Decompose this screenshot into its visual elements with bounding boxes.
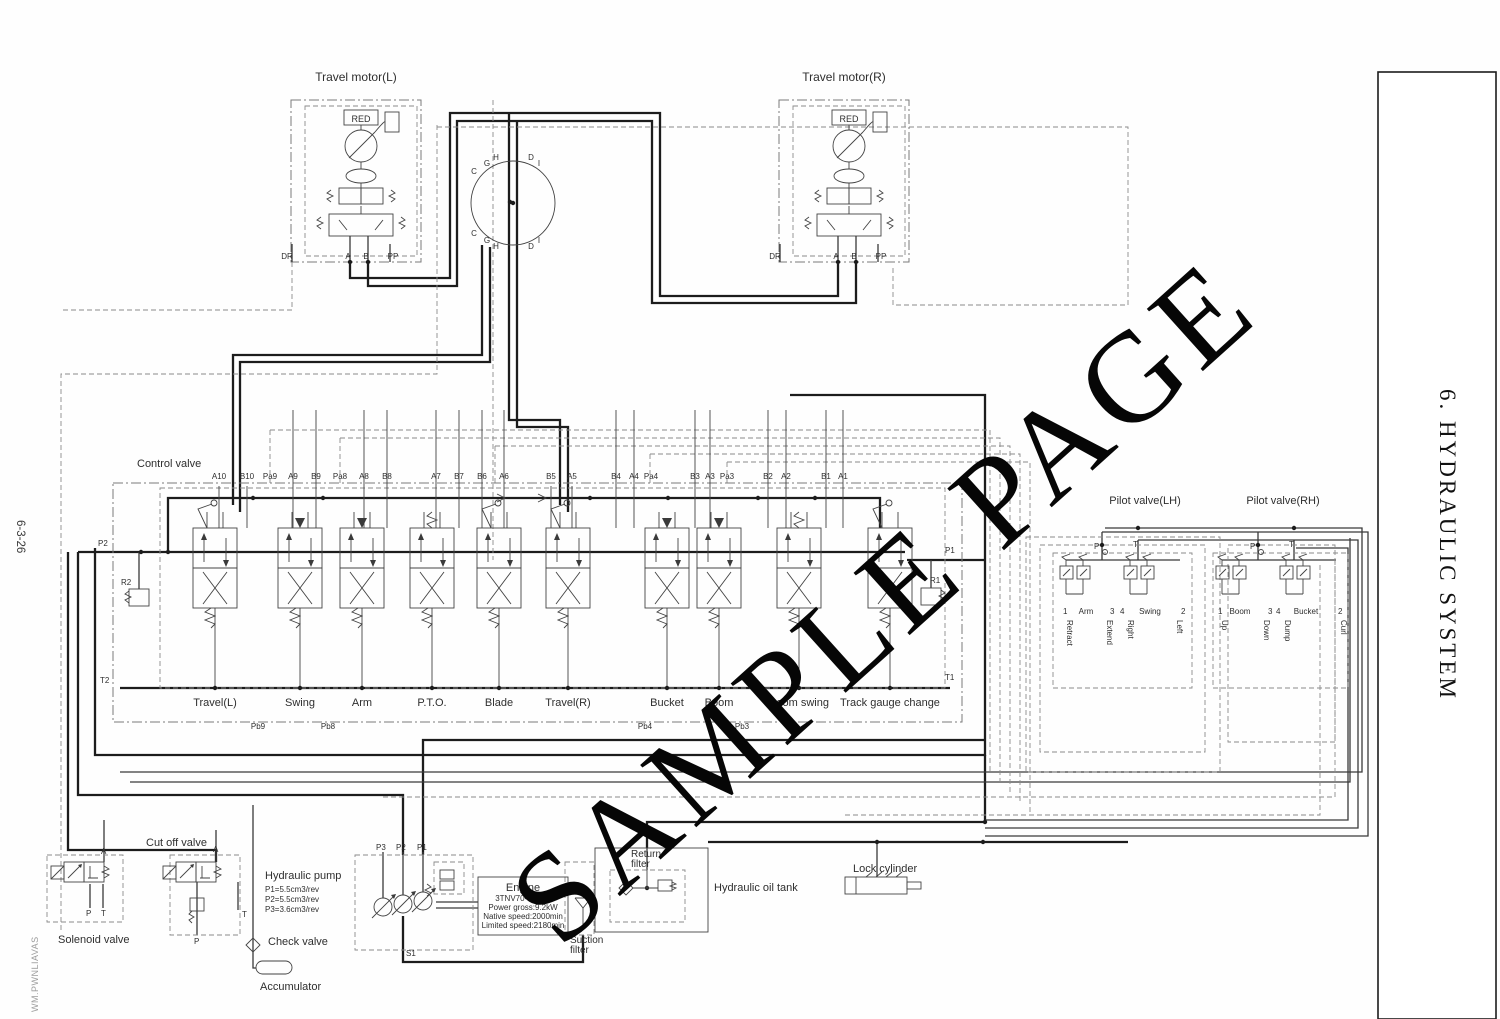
control-valve-port-label: A1: [838, 472, 848, 481]
pilot-direction-label: Dump: [1283, 620, 1292, 642]
pipe-bend: [375, 122, 385, 132]
valve-section-label: Travel(R): [545, 697, 590, 709]
valve-section-label: Blade: [485, 697, 513, 709]
junction-dot: [1100, 543, 1104, 547]
junction-dot: [983, 820, 987, 824]
coil-diagonal: [163, 866, 176, 879]
hydraulic-line: [985, 548, 1348, 820]
pilot-link: [1130, 560, 1147, 594]
valve-envelope: [410, 528, 454, 568]
motor-port-stub: [292, 236, 390, 262]
dashed-boundary-box: [1040, 545, 1205, 752]
pilot-arrow: [357, 518, 367, 528]
control-valve-port-label: Pa8: [333, 472, 348, 481]
service-line: [826, 410, 843, 528]
accumulator-label: Accumulator: [260, 981, 321, 993]
arrowhead: [440, 560, 446, 567]
cutoff-port-t: T: [242, 910, 247, 919]
hydraulic-line: [253, 805, 256, 968]
pipe-fitting: [385, 112, 399, 132]
crossed-flow: [487, 572, 511, 604]
arrowhead: [785, 533, 791, 540]
swivel-port-letter: H: [493, 153, 499, 162]
valve-envelope: [777, 528, 821, 568]
pump-port-s1: S1: [406, 949, 416, 958]
control-valve-port-label: A3: [705, 472, 715, 481]
pump-regulator: [440, 881, 454, 890]
pilot-line: [63, 262, 292, 310]
motor-port-label: B: [363, 252, 368, 261]
arrowhead: [675, 560, 681, 567]
flow-arrow: [180, 866, 192, 878]
junction-dot: [666, 496, 670, 500]
arrowhead: [308, 560, 314, 567]
junction-dot: [665, 686, 669, 690]
spring-symbol: [794, 512, 804, 528]
junction-dot: [1292, 526, 1296, 530]
pilot-link: [1066, 560, 1083, 594]
cut-off-valve-label: Cut off valve: [146, 837, 207, 849]
shuttle-block: [329, 214, 393, 236]
valve-port-stub: [560, 512, 576, 528]
hydraulic-line: [436, 902, 478, 908]
accumulator-capsule: [256, 961, 292, 974]
arrowhead: [653, 533, 659, 540]
crossed-flow: [350, 572, 374, 604]
main-hydraulic-line: [368, 121, 856, 303]
spring-symbol: [317, 217, 405, 229]
swivel-port-letter: D: [528, 242, 534, 251]
manual-lever: [551, 504, 565, 528]
port-t1: T1: [945, 673, 955, 682]
junction-dot: [875, 840, 879, 844]
spring-symbol: [422, 608, 432, 628]
valve-envelope: [477, 528, 521, 568]
flow-arrow: [68, 866, 80, 878]
pilot-link: [1222, 560, 1239, 594]
pilot-lh-p: P: [1094, 542, 1099, 551]
swivel-port-letter: H: [493, 242, 499, 251]
pilot-unit-name: Arm: [1079, 607, 1094, 616]
pilot-direction-label: Retract: [1065, 620, 1074, 647]
pilot-port-number: 4: [1276, 607, 1281, 616]
pilot-direction-label: Extend: [1105, 620, 1114, 645]
dashed-boundary-box: [434, 862, 464, 894]
swivel-port-letter: C: [471, 167, 477, 176]
red-label-right: RED: [839, 114, 859, 124]
spring-symbol: [214, 866, 221, 878]
pump-regulator: [440, 870, 454, 879]
crossed-flow: [707, 572, 731, 604]
tank-label: Hydraulic oil tank: [714, 882, 798, 894]
hydraulic-schematic: CGHDICGHDIDRABPPDRABPPTravel(L)SwingArmP…: [0, 0, 1500, 1019]
relief-r2-label: R2: [121, 578, 132, 587]
pb-port-label: Pb9: [251, 722, 266, 731]
service-line: [768, 410, 786, 528]
junction-dot: [497, 686, 501, 690]
pilot-rh-p: P: [1250, 542, 1255, 551]
pb-port-label: Pb8: [321, 722, 336, 731]
manual-lever: [482, 504, 496, 528]
port-t2: T2: [100, 676, 110, 685]
pilot-port-number: 4: [1120, 607, 1125, 616]
pilot-direction-label: Down: [1262, 620, 1271, 640]
control-valve-port-label: Pa9: [263, 472, 278, 481]
motor-port-label: A: [833, 252, 839, 261]
pilot-rh-t: T: [1289, 540, 1294, 549]
arrowhead: [418, 533, 424, 540]
side-tab-title: 6. HYDRAULIC SYSTEM: [1435, 389, 1460, 701]
pilot-port-number: 1: [1063, 607, 1068, 616]
pilot-direction-label: Curl: [1339, 620, 1348, 635]
brake-symbol: [346, 169, 376, 183]
junction-dot: [321, 496, 325, 500]
service-line: [364, 410, 387, 528]
junction-dot: [756, 496, 760, 500]
valve-flow-line: [1283, 569, 1307, 576]
service-line: [695, 410, 710, 528]
valve-section-label: Travel(L): [193, 697, 237, 709]
control-valve-port-label: A2: [781, 472, 791, 481]
pump-variable-arrow: [372, 896, 394, 918]
arrowhead: [507, 560, 513, 567]
arrowhead: [370, 560, 376, 567]
spring-symbol: [1218, 554, 1243, 560]
pilot-arrow: [295, 518, 305, 528]
junction-dot: [813, 496, 817, 500]
cutoff-port-p: P: [194, 937, 199, 946]
swivel-port-letter: D: [528, 153, 534, 162]
spring-symbol: [709, 608, 719, 628]
manual-lever: [198, 504, 212, 528]
valve-envelope: [645, 528, 689, 568]
arrowhead: [705, 533, 711, 540]
junction-dot: [981, 840, 985, 844]
pilot-unit-name: Boom: [1230, 607, 1251, 616]
spring-symbol: [657, 608, 667, 628]
motor-port-label: A: [345, 252, 351, 261]
pilot-unit-name: Swing: [1139, 607, 1161, 616]
crossed-flow: [655, 572, 679, 604]
spring-symbol: [558, 608, 568, 628]
pump-port-p3: P3: [376, 843, 386, 852]
junction-dot: [251, 496, 255, 500]
blocked-symbol: [88, 866, 98, 878]
spring-symbol: [290, 608, 300, 628]
pilot-port-number: 3: [1268, 607, 1273, 616]
motor-port-stub: [780, 236, 878, 262]
motor-variable-arrow: [837, 132, 863, 158]
control-valve-port-label: B10: [240, 472, 255, 481]
pump-spec-1: P1=5.5cm3/rev: [265, 885, 319, 894]
travel-motor-right-title: Travel motor(R): [802, 70, 886, 84]
valve-envelope: [193, 528, 237, 568]
pilot-lh-t: T: [1133, 540, 1138, 549]
p-port-mark: [1103, 550, 1108, 555]
motor-port-label: PP: [388, 252, 399, 261]
solenoid-port-p: P: [86, 909, 91, 918]
spring-symbol: [125, 591, 131, 603]
service-line: [436, 410, 459, 528]
junction-dot: [139, 550, 143, 554]
valve-flow-line: [339, 220, 383, 230]
red-label-left: RED: [351, 114, 371, 124]
service-line: [616, 410, 634, 528]
main-hydraulic-line: [350, 113, 838, 296]
hydraulic-line: [985, 532, 1368, 836]
arrowhead: [201, 533, 207, 540]
valve-section-label: P.T.O.: [417, 697, 446, 709]
component-boundary-box: [779, 100, 909, 262]
valve-section-label: Arm: [352, 697, 372, 709]
pilot-arrow: [662, 518, 672, 528]
motor-port-label: DR: [769, 252, 781, 261]
junction-dot: [430, 686, 434, 690]
crossed-flow: [556, 572, 580, 604]
junction-dot: [508, 200, 512, 204]
counterbalance-cell: [827, 188, 849, 204]
check-valve-label: Check valve: [268, 936, 328, 948]
port-p2: P2: [98, 539, 108, 548]
control-valve-port-label: B9: [311, 472, 321, 481]
counterbalance-cell: [849, 188, 871, 204]
solenoid-valve-label: Solenoid valve: [58, 934, 130, 946]
arrowhead: [576, 560, 582, 567]
control-valve-port-label: A10: [212, 472, 227, 481]
arrowhead: [807, 560, 813, 567]
swivel-port-letter: G: [484, 236, 490, 245]
main-hydraulic-line: [168, 498, 880, 552]
motor-port-label: DR: [281, 252, 293, 261]
motor-variable-arrow: [349, 132, 375, 158]
counterbalance-cell: [361, 188, 383, 204]
valve-flow-line: [1063, 569, 1087, 576]
pilot-lh-title: Pilot valve(LH): [1109, 495, 1181, 507]
pilot-line: [437, 127, 1128, 305]
motor-port-label: B: [851, 252, 856, 261]
swivel-port-letter: G: [484, 159, 490, 168]
pilot-unit-name: Bucket: [1294, 607, 1319, 616]
spring-symbol: [425, 884, 431, 896]
arrowhead: [286, 533, 292, 540]
pipe-fitting: [873, 112, 887, 132]
swivel-port-letter: C: [471, 229, 477, 238]
control-valve-port-label: A6: [499, 472, 509, 481]
junction-dot: [166, 550, 170, 554]
shuttle-block: [817, 214, 881, 236]
motor-port-label: PP: [876, 252, 887, 261]
control-valve-port-label: B3: [690, 472, 700, 481]
pilot-line: [61, 122, 437, 930]
spring-symbol: [352, 608, 362, 628]
valve-port-stub: [207, 512, 223, 528]
pilot-direction-label: Up: [1220, 620, 1229, 631]
manual-page: CGHDICGHDIDRABPPDRABPPTravel(L)SwingArmP…: [0, 0, 1500, 1019]
junction-dot: [298, 686, 302, 690]
brake-symbol: [834, 169, 864, 183]
lever-knob: [211, 500, 217, 506]
arrowhead: [727, 560, 733, 567]
spring-symbol: [805, 217, 893, 229]
counterbalance-cell: [339, 188, 361, 204]
pilot-port-number: 1: [1218, 607, 1223, 616]
spring-symbol: [1062, 554, 1087, 560]
pilot-direction-label: Right: [1126, 620, 1135, 639]
arrowhead: [223, 560, 229, 567]
dashed-boundary-box: [47, 855, 123, 922]
control-valve-port-label: A7: [431, 472, 441, 481]
lock-cylinder-label: Lock cylinder: [853, 863, 918, 875]
control-valve-port-label: A8: [359, 472, 369, 481]
arrowhead: [554, 533, 560, 540]
sample-page-watermark: SAMPLE PAGE: [484, 231, 1283, 971]
junction-dot: [1136, 526, 1140, 530]
control-valve-port-label: B5: [546, 472, 556, 481]
spring-symbol: [427, 512, 437, 528]
crossed-flow: [420, 572, 444, 604]
pilot-port-number: 3: [1110, 607, 1115, 616]
valve-envelope: [546, 528, 590, 568]
lock-cylinder-rod: [907, 882, 921, 889]
pilot-rh-title: Pilot valve(RH): [1246, 495, 1319, 507]
valve-flow-line: [827, 220, 871, 230]
crossed-flow: [203, 572, 227, 604]
pilot-port-number: 2: [1181, 607, 1186, 616]
solenoid-port-t: T: [101, 909, 106, 918]
coil-diagonal: [51, 866, 64, 879]
pump-port-p2: P2: [396, 843, 406, 852]
blocked-symbol: [200, 866, 210, 878]
valve-envelope: [340, 528, 384, 568]
valve-flow-line: [1219, 569, 1243, 576]
solenoid-port-a: A: [101, 847, 107, 856]
page-number: 6-3-26: [14, 520, 26, 553]
junction-dot: [360, 686, 364, 690]
p-port-mark: [1259, 550, 1264, 555]
control-valve-port-label: B6: [477, 472, 487, 481]
swivel-port-letter: I: [538, 236, 540, 245]
spring-symbol: [189, 911, 194, 923]
pump-spec-3: P3=3.6cm3/rev: [265, 905, 319, 914]
hydraulic-line: [985, 540, 1358, 828]
pump-spec-2: P2=5.5cm3/rev: [265, 895, 319, 904]
junction-dot: [566, 686, 570, 690]
pump-label: Hydraulic pump: [265, 870, 341, 882]
control-valve-port-label: B2: [763, 472, 773, 481]
service-line: [293, 410, 316, 528]
cutoff-port-a: A: [213, 845, 219, 854]
pilot-direction-label: Left: [1175, 620, 1184, 634]
pump-port-p1: P1: [417, 843, 427, 852]
pilot-arrow: [714, 518, 724, 528]
control-valve-port-label: B7: [454, 472, 464, 481]
dashed-boundary-box: [1026, 537, 1220, 772]
valve-flow-line: [1127, 569, 1151, 576]
control-valve-port-label: Pa4: [644, 472, 659, 481]
valve-section-label: Swing: [285, 697, 315, 709]
lock-cylinder-body: [845, 877, 907, 894]
junction-dot: [1256, 543, 1260, 547]
control-valve-port-label: B4: [611, 472, 621, 481]
valve-envelope: [697, 528, 741, 568]
control-valve-port-label: A4: [629, 472, 639, 481]
control-valve-port-label: Pa3: [720, 472, 735, 481]
junction-dot: [213, 686, 217, 690]
crossed-flow: [288, 572, 312, 604]
spring-symbol: [489, 608, 499, 628]
control-valve-port-label: A9: [288, 472, 298, 481]
travel-motor-left-title: Travel motor(L): [315, 70, 397, 84]
control-valve-title: Control valve: [137, 458, 201, 470]
arrowhead: [485, 533, 491, 540]
dashed-boundary-box: [170, 855, 240, 935]
arrowhead: [348, 533, 354, 540]
component-boundary-box: [291, 100, 421, 262]
valve-envelope: [278, 528, 322, 568]
spring-symbol: [102, 866, 109, 878]
corner-watermark: WM.PWNLIAVAS: [30, 936, 40, 1012]
pilot-link: [1286, 560, 1303, 594]
control-valve-port-label: B8: [382, 472, 392, 481]
control-valve-port-label: A5: [567, 472, 577, 481]
relief-valve-r2: [129, 589, 149, 606]
junction-dot: [588, 496, 592, 500]
dashed-boundary-box: [1228, 545, 1335, 742]
pilot-port-number: 2: [1338, 607, 1343, 616]
swivel-port-letter: I: [538, 159, 540, 168]
control-valve-port-label: B1: [821, 472, 831, 481]
spring-symbol: [205, 608, 215, 628]
pump-variable-arrow: [392, 893, 414, 915]
